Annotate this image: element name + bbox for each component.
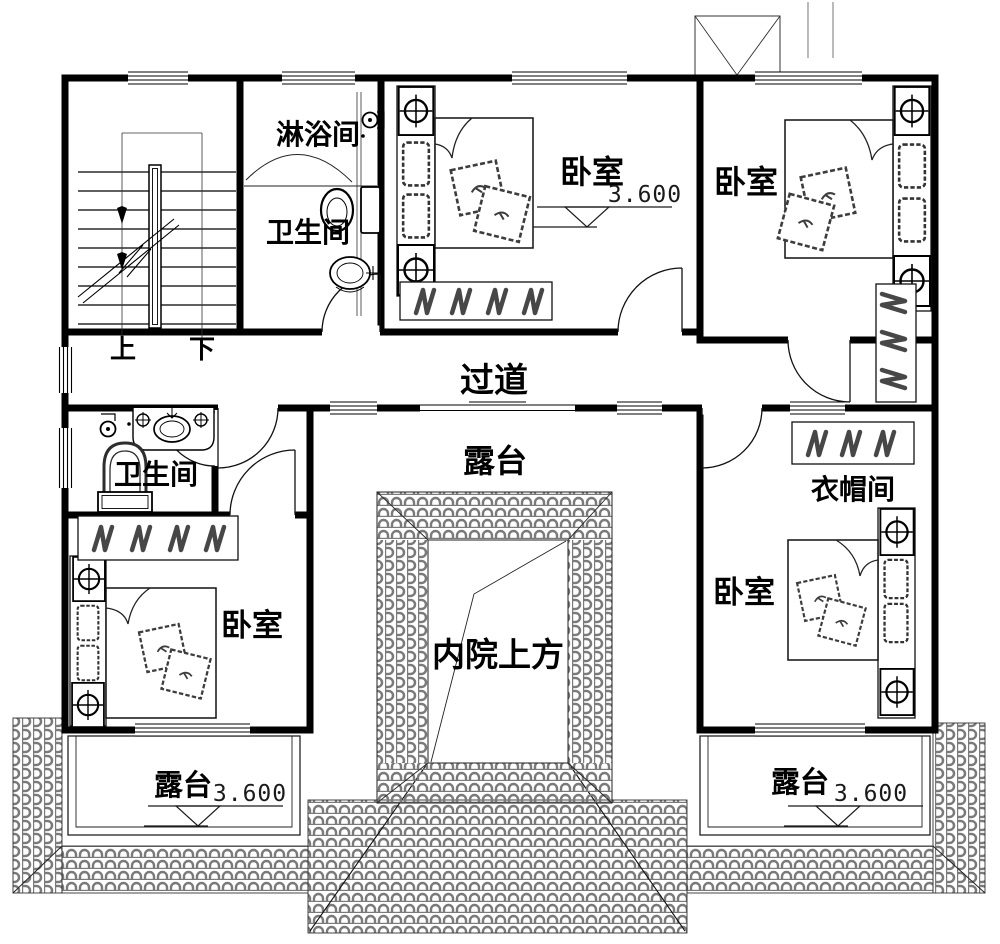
elevation-terrace-bottom-left: 3.600 (213, 781, 287, 807)
label-shower-room: 淋浴间 (276, 119, 360, 150)
label-bedroom-top-right: 卧室 (714, 164, 778, 200)
pillow-icon (885, 604, 908, 642)
roof-band-left (13, 718, 62, 893)
wardrobe-cloakroom (792, 422, 914, 464)
nightstand-icon (880, 669, 913, 715)
label-inner-courtyard: 内院上方 (432, 636, 564, 673)
nightstand-icon (895, 87, 930, 135)
wardrobe-bottom-left (78, 516, 238, 560)
elevation-terrace-bottom-right: 3.600 (834, 781, 908, 807)
roof-band-bottom-left (62, 846, 308, 893)
pillow-icon (78, 606, 99, 641)
label-hallway: 过道 (460, 362, 528, 400)
nightstand-icon (72, 683, 104, 727)
floor-plan-canvas: 上 下 (0, 0, 1000, 944)
nightstand-icon (880, 509, 913, 555)
label-bathroom-lower-left: 卫生间 (114, 459, 198, 490)
label-terrace-center: 露台 (463, 443, 527, 479)
stair-handrail (149, 165, 161, 328)
pillow-icon (403, 143, 429, 186)
nightstand-icon (399, 87, 434, 135)
label-terrace-bottom-left: 露台 (154, 768, 212, 802)
label-terrace-bottom-right: 露台 (771, 765, 829, 799)
pillow-icon (899, 145, 925, 188)
stair-down-label: 下 (189, 334, 215, 364)
wardrobe-top-center (400, 282, 552, 320)
nightstand-icon (73, 557, 105, 601)
label-bedroom-bottom-left: 卧室 (221, 608, 283, 643)
roof-band-right (933, 723, 985, 893)
label-bedroom-bottom-right: 卧室 (713, 575, 775, 610)
label-cloakroom: 衣帽间 (811, 473, 895, 505)
roof-band-bottom-right (687, 846, 933, 893)
pillow-icon (885, 560, 908, 598)
pillow-icon (899, 199, 925, 242)
vanity-counter (133, 408, 214, 450)
pillow-icon (78, 646, 99, 681)
stair-up-label: 上 (110, 334, 136, 364)
elevation-bedroom-top-center: 3.600 (608, 182, 682, 208)
pillow-icon (403, 195, 429, 238)
wardrobe-top-right (876, 284, 916, 402)
label-bathroom-upper: 卫生间 (266, 217, 350, 248)
porch-roof (308, 800, 687, 933)
floor-plan-drawing: 上 下 (0, 0, 1000, 944)
